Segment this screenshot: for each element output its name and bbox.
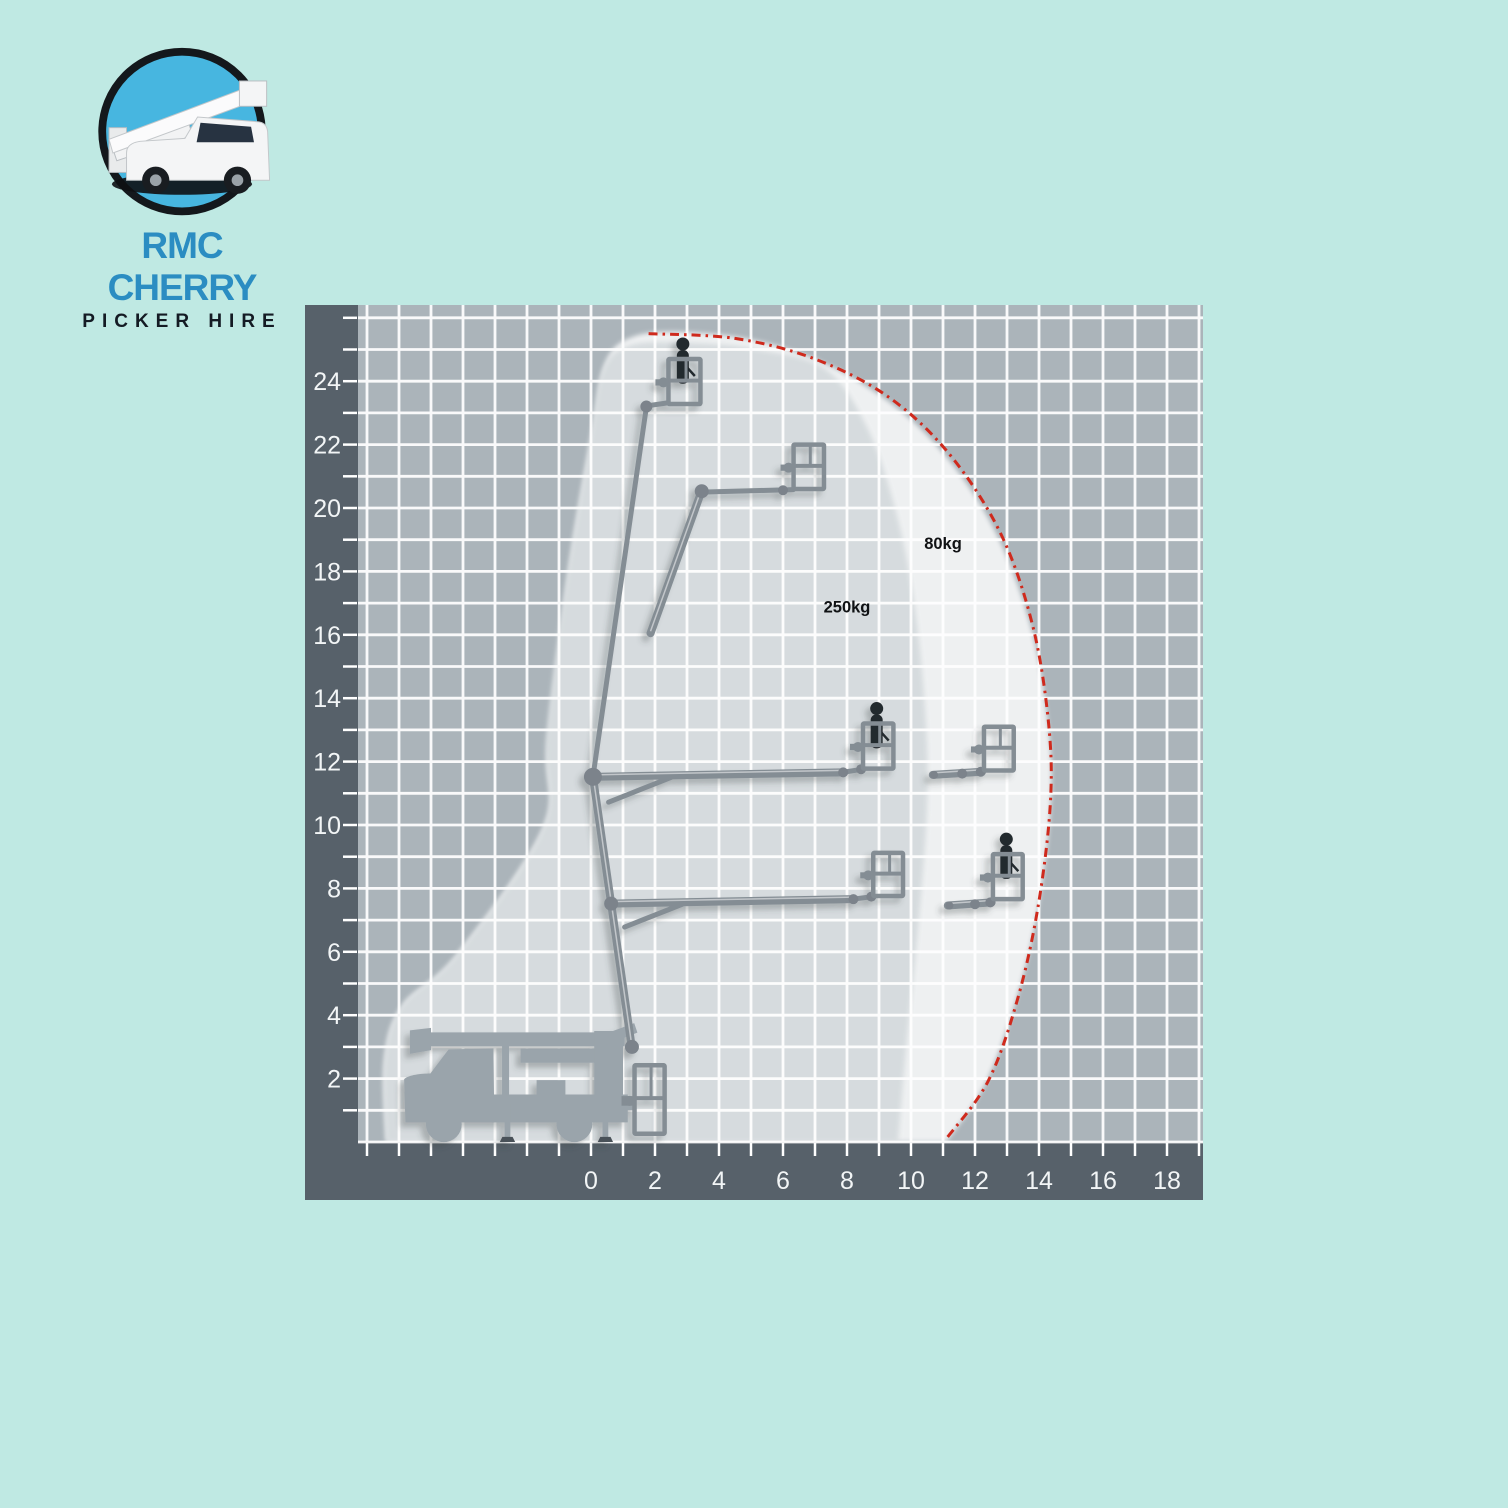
y-axis-label: 4 — [327, 1002, 341, 1030]
boom-joint — [970, 899, 980, 909]
y-axis-label: 10 — [313, 812, 341, 840]
y-axis-label: 2 — [327, 1066, 341, 1094]
logo-company-tagline: PICKER HIRE — [64, 311, 300, 333]
y-axis-label: 8 — [327, 875, 341, 903]
y-axis-label: 22 — [313, 432, 341, 460]
y-axis-label: 12 — [313, 749, 341, 777]
x-axis-label: 0 — [584, 1167, 598, 1195]
y-axis-label: 24 — [313, 368, 341, 396]
x-axis-label: 10 — [897, 1167, 925, 1195]
y-axis-label: 6 — [327, 939, 341, 967]
load-label-250kg: 250kg — [824, 599, 871, 617]
x-axis-label: 8 — [840, 1167, 854, 1195]
boom-joint — [604, 897, 618, 911]
boom-joint — [778, 485, 788, 495]
boom-joint — [945, 902, 953, 910]
x-axis-label: 18 — [1153, 1167, 1181, 1195]
y-axis-label: 18 — [313, 558, 341, 586]
x-axis-label: 2 — [648, 1167, 662, 1195]
x-axis-label: 16 — [1089, 1167, 1117, 1195]
page-background: RMC CHERRY PICKER HIRE 24681012141618202… — [0, 0, 1508, 1508]
company-logo: RMC CHERRY PICKER HIRE — [64, 44, 300, 333]
reach-diagram-panel: 2468101214161820222402468101214161880kg2… — [305, 305, 1205, 1200]
boom-joint — [625, 1040, 639, 1054]
logo-basket — [239, 81, 266, 106]
outrigger-pad — [598, 1137, 613, 1142]
load-label-80kg: 80kg — [924, 535, 962, 553]
boom-joint — [838, 767, 848, 777]
boom-joint — [640, 401, 652, 413]
outrigger-pad — [500, 1137, 515, 1142]
person-figure — [870, 702, 883, 715]
y-axis-label: 20 — [313, 495, 341, 523]
boom-joint — [930, 771, 938, 779]
boom-joint — [695, 484, 709, 498]
y-axis-label: 14 — [313, 685, 341, 713]
person-figure — [676, 338, 689, 351]
boom-joint — [848, 894, 858, 904]
x-axis-label: 4 — [712, 1167, 726, 1195]
x-axis-label: 12 — [961, 1167, 989, 1195]
boom-joint — [957, 769, 967, 779]
x-axis-label: 14 — [1025, 1167, 1053, 1195]
logo-company-name: RMC CHERRY — [64, 225, 300, 309]
reach-diagram: 2468101214161820222402468101214161880kg2… — [305, 305, 1205, 1200]
y-axis-label: 16 — [313, 622, 341, 650]
boom-joint — [584, 768, 602, 786]
person-figure — [1000, 833, 1013, 846]
x-axis-label: 6 — [776, 1167, 790, 1195]
x-axis-band — [305, 1142, 1203, 1200]
logo-emblem — [67, 44, 297, 224]
